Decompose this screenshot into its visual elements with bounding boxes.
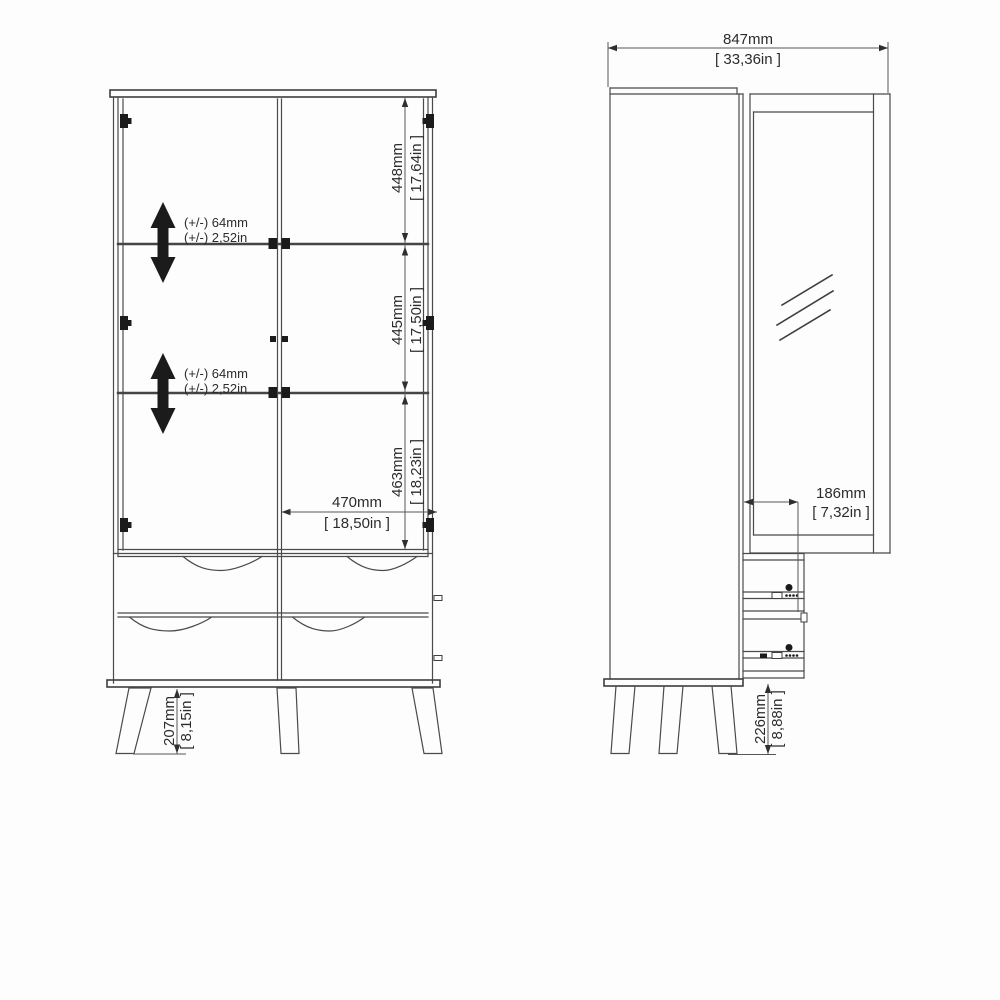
front-dim-448-inch: [ 17,64in ] [408, 135, 425, 201]
drawer-runner-mark [434, 656, 442, 661]
front-top-board [110, 90, 436, 97]
technical-drawing-page: 448mm [ 17,64in ] 445mm [ 17,50in ] 463m… [0, 0, 1000, 1000]
glass-reflection-icon-line [780, 310, 830, 340]
glass-reflection-icon [777, 275, 833, 340]
shelf-adjust-lower-inch: (+/-) 2,52in [184, 381, 247, 396]
shelf-adjust-arrow-icon [151, 202, 176, 283]
side-drawer-unit [743, 554, 807, 679]
rail-roller-icon [786, 584, 793, 591]
front-leg-middle [277, 688, 299, 754]
front-view: 448mm [ 17,64in ] 445mm [ 17,50in ] 463m… [107, 90, 442, 754]
side-drawer-depth-dimension: 186mm [ 7,32in ] [744, 485, 870, 612]
shelf-adjust-upper-inch: (+/-) 2,52in [184, 230, 247, 245]
front-shelf-clips [269, 238, 291, 398]
hinge-icon [426, 518, 434, 532]
side-dim-186-inch: [ 7,32in ] [812, 504, 870, 521]
drawer-handle-cutout [293, 618, 364, 632]
drawer-slide-rail-2-line [796, 654, 799, 657]
dim-arrow-down-icon [402, 540, 408, 549]
side-dim-847-inch: [ 33,36in ] [715, 51, 781, 68]
side-leg-back [611, 686, 635, 754]
drawer-unit-notch [801, 613, 807, 622]
dim-arrow-down-icon [402, 382, 408, 391]
dim-arrow-up-icon [402, 98, 408, 107]
shelf-adjust-lower: (+/-) 64mm (+/-) 2,52in [151, 353, 248, 434]
dim-arrow-up-icon [402, 396, 408, 405]
drawer-handle-cutout [183, 557, 262, 571]
hinge-icon [128, 118, 132, 124]
hinge-icon [423, 522, 427, 528]
dim-arrow-right-icon [879, 45, 888, 51]
dim-arrow-left-icon [282, 509, 291, 515]
hinge-icon [120, 518, 128, 532]
side-view: 847mm [ 33,36in ] 186mm [ 7,32in ] 226mm… [604, 31, 890, 755]
dim-arrow-right-icon [789, 499, 798, 505]
side-bottom-board [604, 679, 743, 686]
dim-arrow-left-icon [744, 499, 753, 505]
front-dim-463-inch: [ 18,23in ] [408, 439, 425, 505]
side-width-dimension: 847mm [ 33,36in ] [608, 31, 888, 93]
glass-reflection-icon-line [782, 275, 832, 305]
side-legs [611, 686, 737, 754]
side-dim-226-mm: 226mm [752, 694, 769, 744]
side-leg-front [712, 686, 737, 754]
drawer-slide-rail-2-line [789, 654, 792, 657]
drawer-slide-rail-1 [772, 584, 798, 599]
hinge-icon [426, 316, 434, 330]
hinge-icon [128, 320, 132, 326]
front-height-dimension: 448mm [ 17,64in ] 445mm [ 17,50in ] 463m… [389, 98, 425, 549]
front-dim-445-inch: [ 17,50in ] [408, 287, 425, 353]
side-cabinet-body [604, 88, 743, 686]
dim-arrow-left-icon [608, 45, 617, 51]
front-dim-470-inch: [ 18,50in ] [324, 515, 390, 532]
shelf-adjust-upper-mm: (+/-) 64mm [184, 215, 248, 230]
front-drawers [107, 557, 442, 688]
front-dim-448-mm: 448mm [389, 143, 406, 193]
drawer-slide-rail-1-line [785, 594, 788, 597]
side-dim-186-mm: 186mm [816, 485, 866, 502]
drawer-slide-rail-1-line [789, 594, 792, 597]
drawer-slide-rail-2-line [792, 654, 795, 657]
shelf-clip-icon [269, 238, 278, 249]
front-bottom-board [107, 680, 440, 687]
cabinet-dimension-drawing: 448mm [ 17,64in ] 445mm [ 17,50in ] 463m… [0, 0, 1000, 1000]
hinge-icon [120, 114, 128, 128]
hinge-icon [423, 118, 427, 124]
shelf-clip-icon [282, 387, 291, 398]
glass-reflection-icon-line [777, 291, 833, 325]
shelf-clip-icon [282, 238, 291, 249]
drawer-slide-rail-2-line [785, 654, 788, 657]
shelf-adjust-lower-mm: (+/-) 64mm [184, 366, 248, 381]
dim-arrow-up-icon [402, 247, 408, 256]
side-leg-middle [659, 686, 683, 754]
rail-bracket [772, 593, 782, 599]
dim-arrow-down-icon [402, 233, 408, 242]
drawer-runner-mark [434, 596, 442, 601]
shelf-clip-icon [269, 387, 278, 398]
front-leg-left [116, 688, 151, 754]
rail-roller-icon [786, 644, 793, 651]
hinge-icon [426, 114, 434, 128]
hinge-icon [128, 522, 132, 528]
drawer-handle-cutout [130, 618, 211, 632]
shelf-pin-icon [270, 336, 276, 342]
front-dim-207-inch: [ 8,15in ] [178, 692, 195, 750]
rail-stop [760, 654, 767, 659]
side-dim-226-inch: [ 8,88in ] [769, 690, 786, 748]
drawer-handle-cutout [347, 557, 417, 571]
rail-bracket [772, 653, 782, 659]
front-dim-470-mm: 470mm [332, 494, 382, 511]
shelf-pin-icon [282, 336, 288, 342]
side-dim-847-mm: 847mm [723, 31, 773, 48]
front-leg-right [412, 688, 442, 754]
shelf-adjust-upper: (+/-) 64mm (+/-) 2,52in [151, 202, 248, 283]
front-dim-445-mm: 445mm [389, 295, 406, 345]
front-dim-463-mm: 463mm [389, 447, 406, 497]
drawer-slide-rail-1-line [792, 594, 795, 597]
hinge-icon [120, 316, 128, 330]
front-dim-207-mm: 207mm [161, 696, 178, 746]
